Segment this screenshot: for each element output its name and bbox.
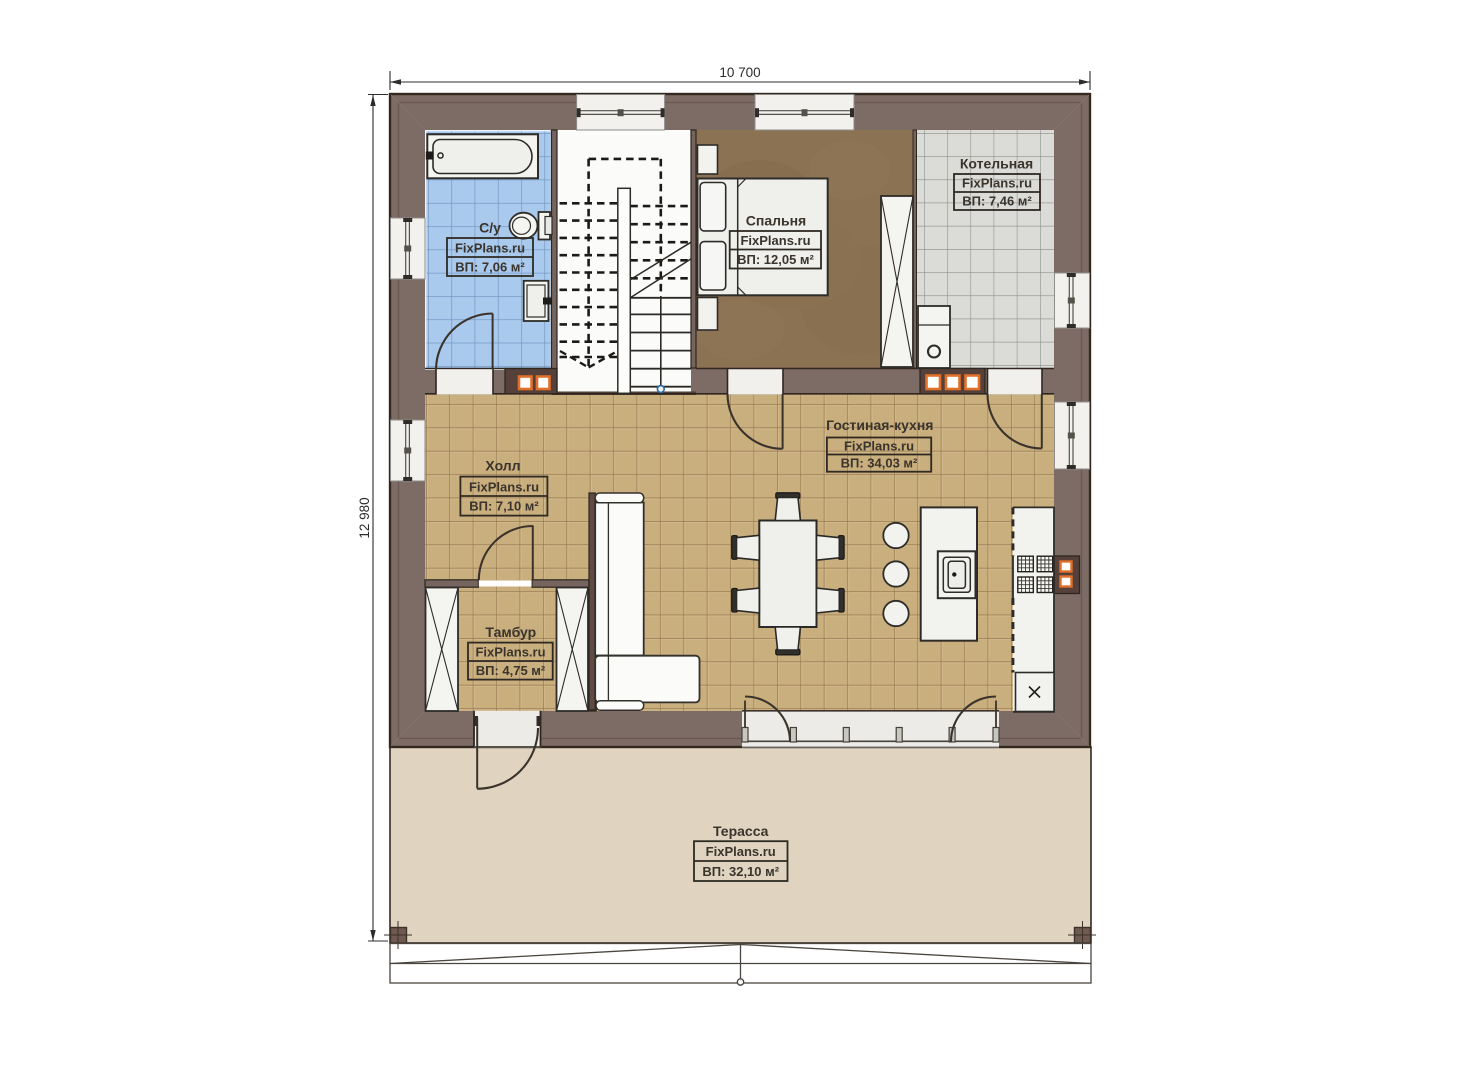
svg-text:ВП: 7,06 м²: ВП: 7,06 м² bbox=[455, 260, 525, 275]
svg-text:FixPlans.ru: FixPlans.ru bbox=[706, 844, 776, 859]
svg-text:Котельная: Котельная bbox=[960, 156, 1033, 172]
svg-text:12 980: 12 980 bbox=[357, 497, 372, 538]
svg-text:ВП: 7,46 м²: ВП: 7,46 м² bbox=[962, 194, 1032, 209]
svg-text:ВП: 7,10 м²: ВП: 7,10 м² bbox=[469, 499, 539, 514]
svg-text:FixPlans.ru: FixPlans.ru bbox=[475, 645, 545, 660]
svg-text:С/у: С/у bbox=[479, 220, 501, 236]
svg-text:Гостиная-кухня: Гостиная-кухня bbox=[826, 417, 933, 433]
svg-text:FixPlans.ru: FixPlans.ru bbox=[455, 241, 525, 256]
svg-text:ВП: 32,10 м²: ВП: 32,10 м² bbox=[702, 864, 779, 879]
svg-text:FixPlans.ru: FixPlans.ru bbox=[740, 233, 810, 248]
svg-text:Холл: Холл bbox=[485, 458, 520, 474]
svg-text:FixPlans.ru: FixPlans.ru bbox=[962, 176, 1032, 191]
svg-text:ВП: 12,05 м²: ВП: 12,05 м² bbox=[737, 252, 814, 267]
svg-text:FixPlans.ru: FixPlans.ru bbox=[844, 439, 914, 454]
svg-text:Спальня: Спальня bbox=[746, 213, 806, 229]
svg-text:10 700: 10 700 bbox=[719, 65, 760, 80]
svg-text:ВП: 4,75 м²: ВП: 4,75 м² bbox=[476, 663, 546, 678]
svg-text:Тамбур: Тамбур bbox=[485, 624, 536, 640]
svg-text:FixPlans.ru: FixPlans.ru bbox=[469, 480, 539, 495]
svg-text:Терасса: Терасса bbox=[713, 823, 769, 839]
svg-text:ВП: 34,03 м²: ВП: 34,03 м² bbox=[841, 456, 918, 471]
